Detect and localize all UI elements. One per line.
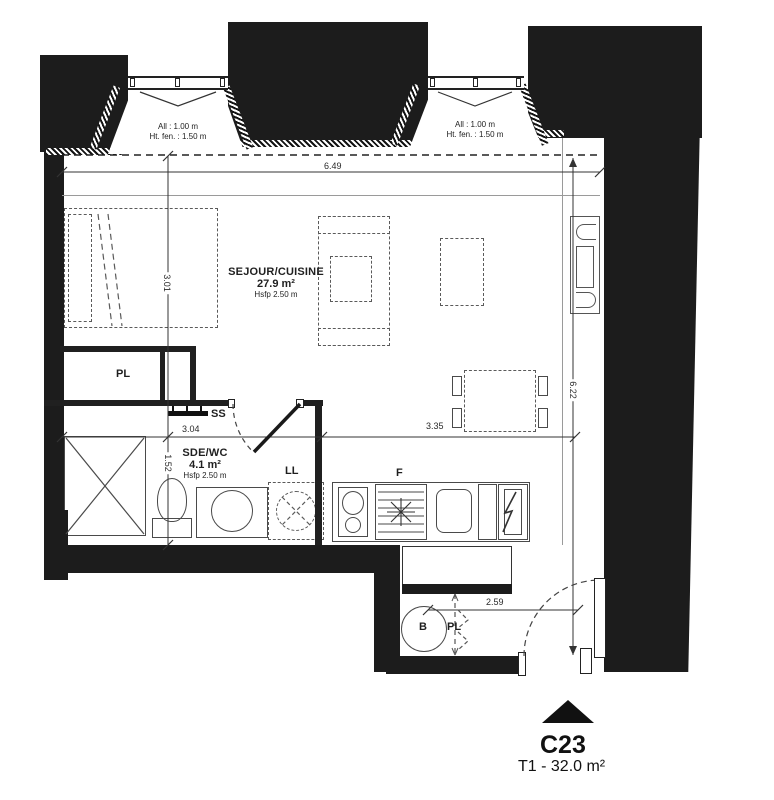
partition-bath-top-left <box>44 400 233 406</box>
room-label-living: SEJOUR/CUISINE 27.9 m² Hsfp 2.50 m <box>196 266 356 299</box>
dim-arrow-down <box>569 646 577 655</box>
window-right-mullion-a <box>430 78 435 87</box>
bath-ceiling: Hsfp 2.50 m <box>155 471 255 480</box>
living-name: SEJOUR/CUISINE <box>196 266 356 278</box>
chair-left-bottom <box>452 408 462 428</box>
towel-dryer-bracket-a <box>172 406 174 411</box>
towel-dryer-bracket-c <box>200 406 202 411</box>
dim-tick <box>573 605 583 615</box>
electrical-panel-inner <box>504 489 522 535</box>
wall-face-line-right <box>562 138 563 545</box>
dim-label-living-height: 3.01 <box>162 272 172 294</box>
dim-label-right-height: 6.22 <box>568 379 578 401</box>
window-left-annotation: All : 1.00 m Ht. fen. : 1.50 m <box>128 122 228 142</box>
partition-closet-right <box>190 346 196 404</box>
dim-label-bath-width: 3.04 <box>180 424 202 434</box>
window-right-annotation: All : 1.00 m Ht. fen. : 1.50 m <box>425 120 525 140</box>
door-jamb-entry-left <box>518 652 526 676</box>
unit-type-area: T1 - 32.0 m² <box>518 758 605 776</box>
dim-label-kitchen-width: 3.35 <box>424 421 446 431</box>
wall-entry-left <box>374 546 400 672</box>
hob-burner-large <box>342 491 364 515</box>
towel-dryer <box>168 411 208 416</box>
north-triangle-icon <box>542 700 594 723</box>
toilet-bowl <box>157 478 187 522</box>
sofa-back <box>318 216 390 234</box>
radiator-hook-top <box>576 224 596 240</box>
entry-door-leaf <box>594 578 606 658</box>
living-area: 27.9 m² <box>196 278 356 290</box>
window-left-reveal <box>108 88 245 154</box>
window-left-mullion-b <box>175 78 180 87</box>
radiator-core <box>576 246 594 288</box>
bath-area: 4.1 m² <box>155 459 255 471</box>
window-left-allege: All : 1.00 m <box>158 122 198 131</box>
door-jamb-entry-right <box>580 648 592 674</box>
dim-tick <box>163 432 173 442</box>
window-left-hauteur: Ht. fen. : 1.50 m <box>150 132 207 141</box>
dining-table <box>464 370 536 432</box>
chair-right-top <box>538 376 548 396</box>
bath-door-leaf <box>254 404 300 452</box>
label-entry-closet: PL <box>447 621 461 633</box>
window-right-allege: All : 1.00 m <box>455 120 495 129</box>
partition-closet-inner <box>160 352 165 404</box>
radiator-hook-bottom <box>576 292 596 308</box>
bath-door-swing <box>233 404 253 451</box>
sofa-front <box>318 328 390 346</box>
living-ceiling: Hsfp 2.50 m <box>196 290 356 299</box>
window-left-mullion-a <box>130 78 135 87</box>
entry-cabinet-edge <box>402 584 512 594</box>
partition-closet-top <box>60 346 196 352</box>
wall-bottom <box>48 545 400 573</box>
towel-dryer-bracket-b <box>186 406 188 411</box>
chair-left-top <box>452 376 462 396</box>
dim-tick <box>570 432 580 442</box>
room-label-bath: SDE/WC 4.1 m² Hsfp 2.50 m <box>155 447 255 480</box>
label-towel-dryer: SS <box>211 408 226 420</box>
floor-plan: All : 1.00 m Ht. fen. : 1.50 m All : 1.0… <box>0 0 774 800</box>
washbasin <box>211 490 253 532</box>
fridge-unit <box>375 484 427 540</box>
label-fridge: F <box>396 467 403 479</box>
door-jamb-bath-right <box>296 399 304 408</box>
hob-burner-small <box>345 517 361 533</box>
chair-right-bottom <box>538 408 548 428</box>
wall-face-line-top <box>62 195 600 196</box>
wall-right-column <box>604 26 702 672</box>
entry-door-swing <box>524 580 600 656</box>
label-closet: PL <box>116 368 130 380</box>
window-right-mullion-c <box>516 78 521 87</box>
door-jamb-bath-left <box>228 399 235 408</box>
window-right-hauteur: Ht. fen. : 1.50 m <box>447 130 504 139</box>
sink-basin <box>436 489 472 533</box>
armchair <box>440 238 484 306</box>
partition-bath-right <box>315 403 322 545</box>
dim-label-top-width: 6.49 <box>322 161 344 171</box>
bath-name: SDE/WC <box>155 447 255 459</box>
dim-tick <box>595 167 605 177</box>
label-washer: LL <box>285 465 298 477</box>
bed-pillows <box>68 214 92 322</box>
counter-divider <box>478 484 497 540</box>
shower <box>64 436 146 536</box>
window-right-mullion-b <box>473 78 478 87</box>
window-left-mullion-c <box>220 78 225 87</box>
washing-machine-drum <box>276 491 316 531</box>
wall-entry-bottom <box>386 656 524 674</box>
unit-title: C23 <box>540 731 586 760</box>
label-water-heater: B <box>419 621 427 633</box>
dim-arrow-up <box>569 158 577 167</box>
dim-label-entry-width: 2.59 <box>484 597 506 607</box>
